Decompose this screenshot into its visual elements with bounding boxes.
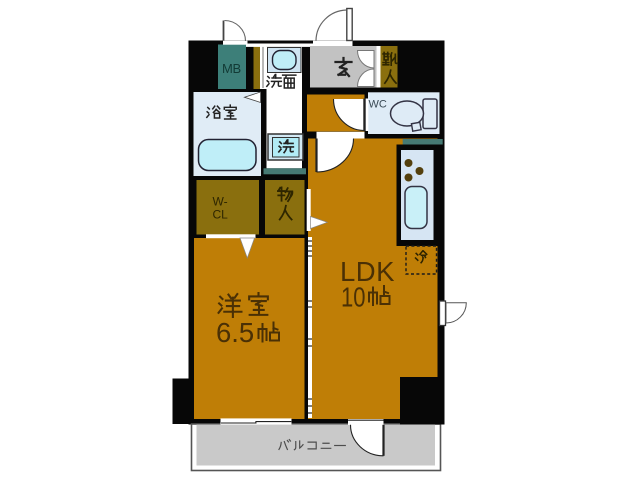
svg-text:W-: W- (213, 195, 228, 209)
svg-text:MB: MB (222, 61, 241, 76)
svg-text:WC: WC (369, 98, 387, 110)
svg-text:6.5: 6.5 (216, 317, 254, 348)
svg-text:CL: CL (213, 208, 229, 222)
svg-text:10: 10 (341, 282, 366, 313)
